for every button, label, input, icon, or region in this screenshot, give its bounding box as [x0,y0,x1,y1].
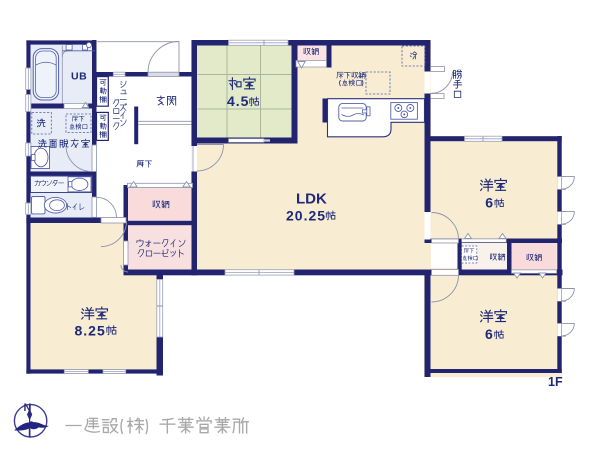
svg-text:4.5: 4.5 [227,93,249,109]
svg-text:6: 6 [485,195,494,211]
svg-text:6: 6 [485,326,494,342]
svg-text:8.25: 8.25 [75,323,106,339]
svg-text:LDK: LDK [296,191,327,208]
svg-text:UB: UB [71,71,87,83]
svg-text:20.25: 20.25 [286,208,326,224]
svg-text:1F: 1F [548,375,563,389]
